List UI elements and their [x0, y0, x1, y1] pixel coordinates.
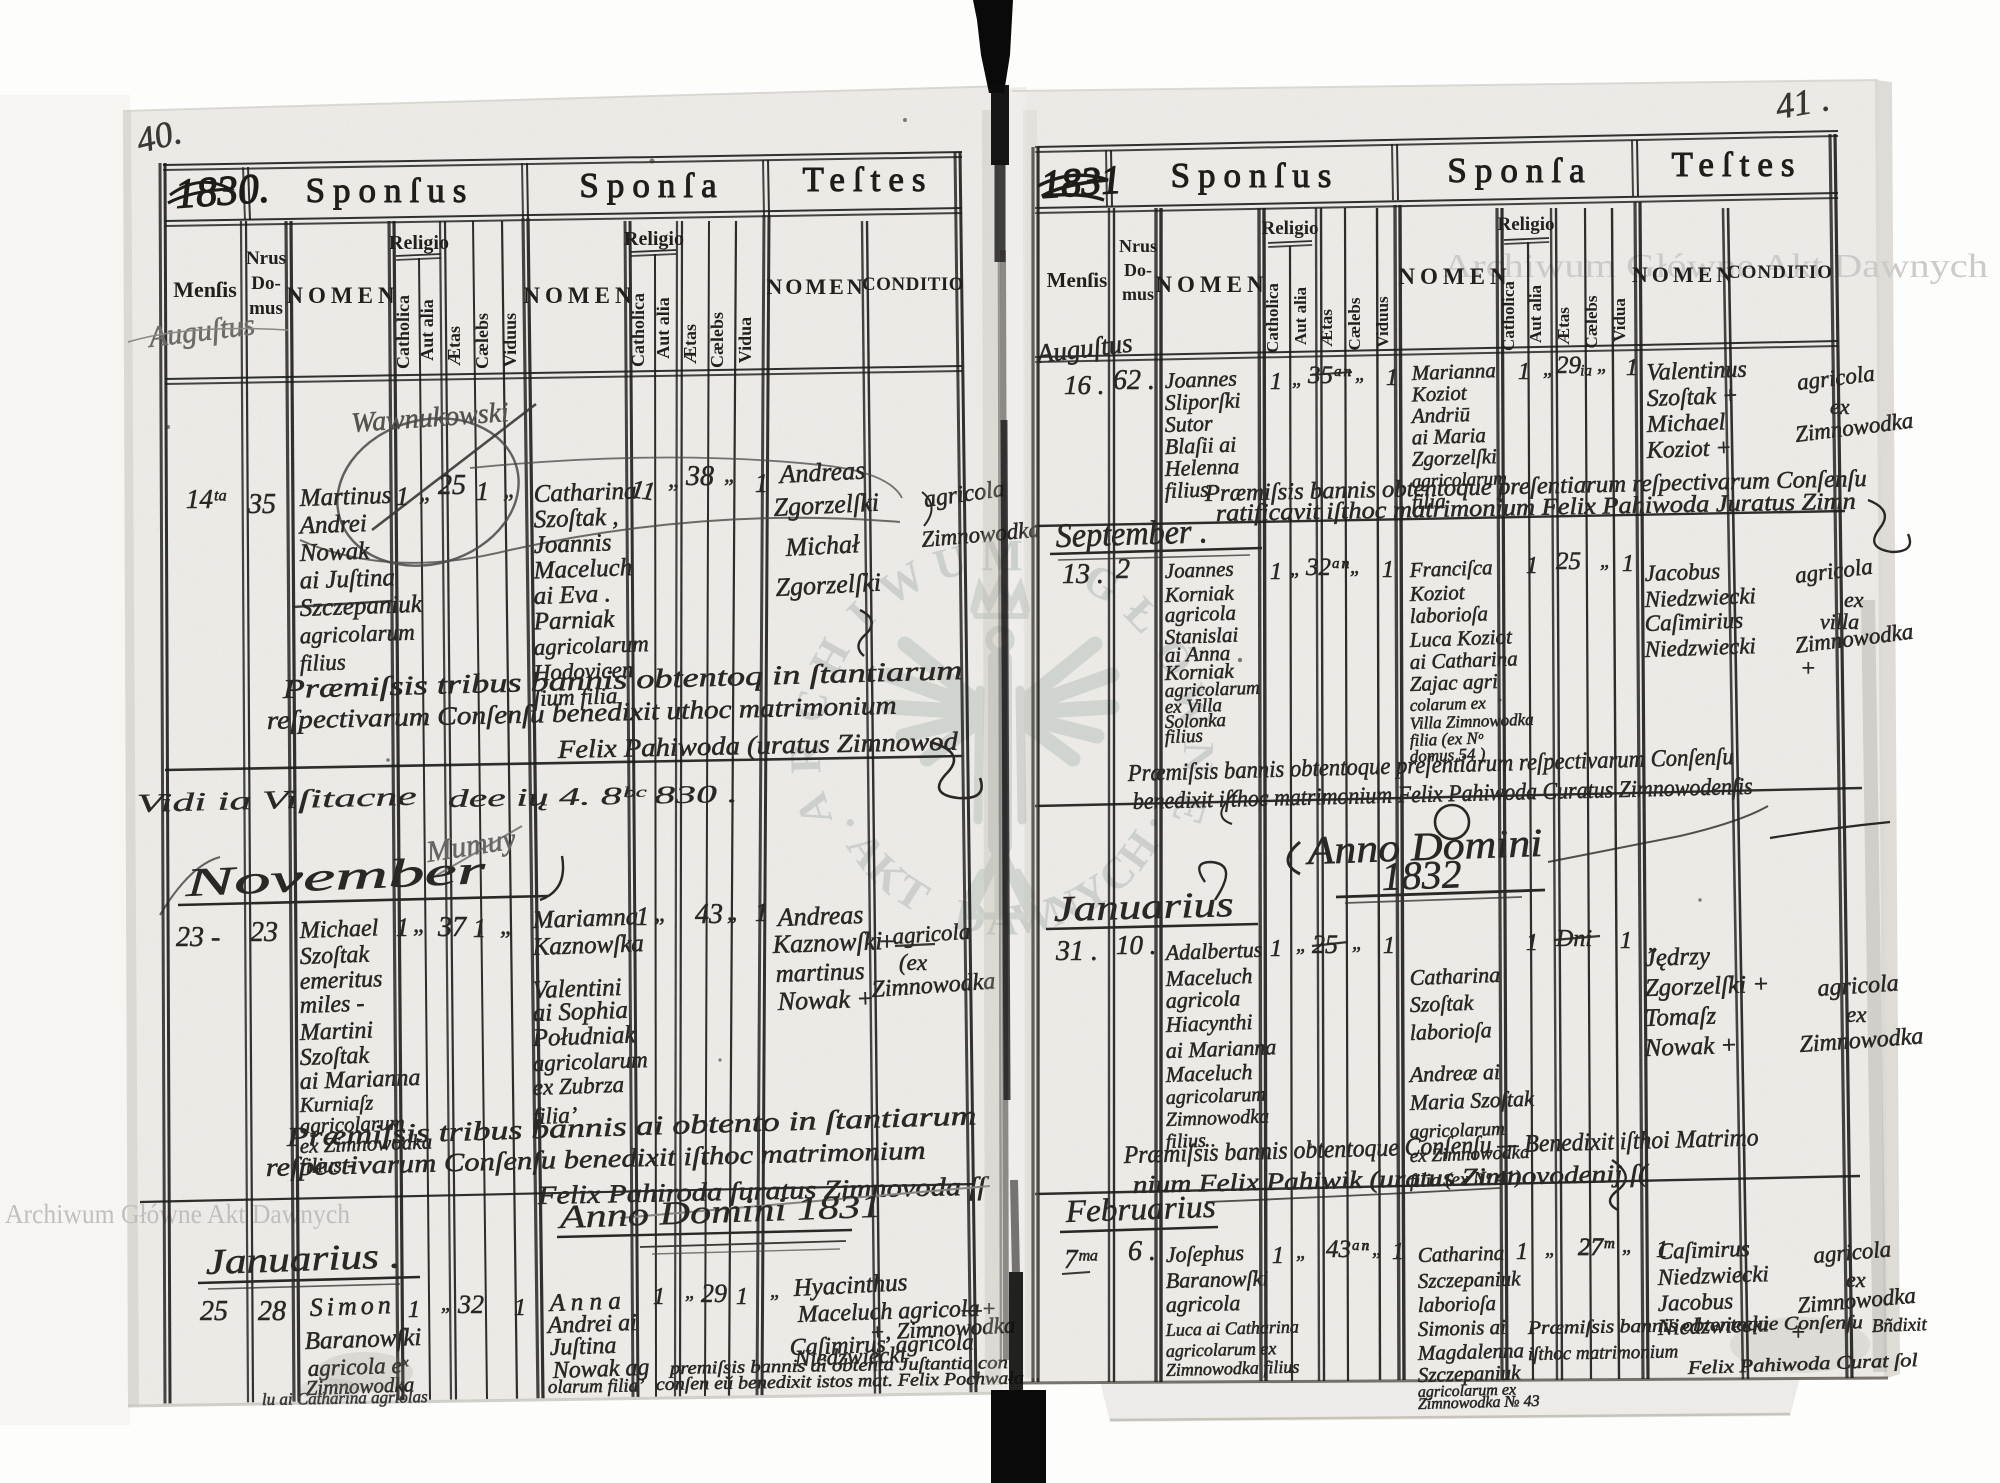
svg-text:agricolarum: agricolarum	[532, 1047, 648, 1076]
svg-text:Zgorzelſki: Zgorzelſki	[773, 488, 880, 522]
svg-text:1: 1	[755, 469, 768, 498]
svg-text:„: „	[1292, 368, 1303, 390]
svg-text:CONDITIO: CONDITIO	[862, 274, 964, 295]
svg-text:1: 1	[636, 902, 649, 931]
svg-text:„: „	[1355, 363, 1366, 385]
svg-text:Zimnowodka filius: Zimnowodka filius	[1166, 1357, 1300, 1380]
svg-text:Aut alia: Aut alia	[1291, 286, 1310, 345]
svg-text:„: „	[1290, 558, 1301, 580]
svg-text:Jędrzy: Jędrzy	[1644, 943, 1711, 972]
svg-text:NOMEN: NOMEN	[523, 283, 636, 308]
svg-text:Cælebs: Cælebs	[472, 313, 492, 369]
svg-text:„: „	[1600, 550, 1611, 572]
svg-text:1: 1	[1518, 359, 1530, 385]
svg-text:1: 1	[1516, 1239, 1528, 1265]
svg-text:37: 37	[437, 912, 467, 943]
svg-text:Michał: Michał	[784, 529, 861, 562]
svg-text:iſthoc matrimonium: iſthoc matrimonium	[1528, 1341, 1679, 1365]
svg-text:1: 1	[653, 1284, 665, 1310]
svg-text:Maceluch: Maceluch	[1164, 1059, 1253, 1087]
svg-text:Zgorzelſki +: Zgorzelſki +	[1644, 971, 1769, 1002]
svg-text:Aut alia: Aut alia	[653, 297, 673, 359]
svg-text:Vidua: Vidua	[1610, 298, 1629, 342]
svg-text:1: 1	[514, 1295, 526, 1321]
svg-text:35: 35	[247, 489, 276, 520]
svg-text:Kaznowſka: Kaznowſka	[531, 930, 644, 961]
svg-text:Simon: Simon	[309, 1290, 395, 1322]
svg-text:Catholica: Catholica	[1263, 283, 1282, 353]
svg-text:43: 43	[695, 899, 723, 930]
svg-text:38: 38	[685, 461, 714, 492]
svg-text:Franciſca: Franciſca	[1408, 555, 1493, 582]
svg-text:1830.: 1830.	[173, 165, 270, 217]
svg-text:1: 1	[1626, 355, 1638, 381]
svg-text:Valentinus: Valentinus	[1646, 357, 1747, 386]
svg-text:„: „	[685, 1281, 696, 1303]
svg-text:CONDITIO: CONDITIO	[1727, 262, 1833, 283]
svg-text:Teſtes: Teſtes	[802, 160, 933, 199]
svg-text:25: 25	[438, 470, 466, 501]
svg-text:ai Juſtina: ai Juſtina	[299, 564, 395, 594]
svg-text:Aut alia: Aut alia	[1526, 284, 1545, 343]
svg-text:Caſimirius: Caſimirius	[1644, 608, 1743, 636]
svg-text:Andreæ ai: Andreæ ai	[1407, 1059, 1500, 1087]
svg-text:Szoſtak +: Szoſtak +	[1646, 383, 1738, 412]
svg-text:„: „	[413, 912, 426, 938]
svg-text:miles -: miles -	[299, 991, 365, 1019]
svg-text:Szczepaniuk: Szczepaniuk	[1418, 1266, 1522, 1293]
svg-text:Do-: Do-	[251, 273, 281, 294]
svg-text:23: 23	[250, 917, 278, 948]
svg-text:laborioſa: laborioſa	[1409, 1017, 1492, 1045]
svg-text:1: 1	[1526, 553, 1538, 579]
svg-text:Sponſa: Sponſa	[579, 166, 724, 205]
svg-text:Menſis: Menſis	[1047, 268, 1108, 292]
svg-text:Cælebs: Cælebs	[707, 312, 727, 368]
svg-text:11: 11	[629, 474, 657, 506]
svg-text:Maceluch: Maceluch	[532, 554, 632, 584]
svg-text:Januarius .: Januarius .	[205, 1235, 401, 1282]
svg-text:Bñdixit: Bñdixit	[1871, 1314, 1927, 1337]
svg-text:agricolarum: agricolarum	[533, 631, 649, 660]
svg-text:Sponſus: Sponſus	[1171, 156, 1340, 195]
svg-text:olarum filia’: olarum filia’	[548, 1375, 645, 1398]
svg-text:Tomaſz: Tomaſz	[1644, 1003, 1717, 1032]
svg-text:agricola: agricola	[1165, 1290, 1240, 1317]
svg-text:Catharina: Catharina	[533, 477, 637, 508]
svg-text:„: „	[1597, 354, 1608, 376]
svg-text:31 .: 31 .	[1055, 936, 1098, 967]
svg-text:laborioſa: laborioſa	[1409, 601, 1488, 628]
svg-text:Maria Szoſtak: Maria Szoſtak	[1408, 1086, 1535, 1115]
svg-text:Nowak: Nowak	[298, 538, 370, 567]
svg-text:„: „	[770, 1280, 781, 1302]
svg-text:NOMEN: NOMEN	[1632, 262, 1736, 287]
svg-text:Baranowſki: Baranowſki	[304, 1324, 422, 1355]
svg-text:Michael: Michael	[298, 915, 379, 944]
svg-text:6 .: 6 .	[1128, 1236, 1156, 1267]
svg-text:Catholica: Catholica	[628, 293, 648, 367]
svg-text:Nowak +: Nowak +	[1643, 1032, 1737, 1062]
svg-text:Ætas: Ætas	[444, 326, 464, 366]
svg-text:Niedzwiecki: Niedzwiecki	[1643, 633, 1756, 662]
svg-text:14ᵗᵃ: 14ᵗᵃ	[186, 484, 228, 514]
svg-text:Vidua: Vidua	[735, 317, 755, 363]
svg-text:1: 1	[1526, 930, 1538, 956]
svg-text:filius: filius	[1164, 726, 1203, 748]
svg-text:„: „	[668, 467, 681, 493]
svg-text:September .: September .	[1055, 513, 1208, 555]
svg-text:Mariamna: Mariamna	[531, 903, 638, 934]
svg-text:mus: mus	[1122, 284, 1154, 304]
svg-text:Andrei: Andrei	[297, 510, 367, 539]
svg-text:2: 2	[1116, 554, 1130, 585]
svg-text:1: 1	[1270, 559, 1282, 585]
svg-text:Nrus: Nrus	[246, 248, 286, 269]
svg-text:dee ių 4. 8ᵇᶜ 830 .: dee ių 4. 8ᵇᶜ 830 .	[448, 781, 738, 813]
svg-text:62 .: 62 .	[1113, 365, 1155, 396]
svg-text:Zimnowodka № 43: Zimnowodka № 43	[1418, 1393, 1540, 1413]
svg-text:1: 1	[408, 1297, 420, 1323]
svg-text:Caſimirus: Caſimirus	[1657, 1236, 1750, 1264]
svg-text:1: 1	[1392, 1239, 1404, 1265]
svg-text:1: 1	[1622, 551, 1634, 577]
svg-text:„: „	[1296, 1241, 1307, 1263]
svg-text:agricolarum: agricolarum	[299, 619, 415, 648]
svg-text:32ᵃⁿ: 32ᵃⁿ	[1305, 554, 1349, 581]
svg-text:16 .: 16 .	[1064, 370, 1105, 400]
svg-text:„: „	[441, 1293, 452, 1315]
svg-text:1: 1	[476, 477, 489, 506]
svg-text:Menſis: Menſis	[173, 277, 237, 302]
svg-text:Szoſtak: Szoſtak	[1409, 990, 1475, 1017]
svg-text:„: „	[500, 914, 513, 940]
svg-text:25: 25	[200, 1296, 228, 1327]
svg-text:„: „	[1350, 556, 1361, 578]
svg-text:29ᵢₐ: 29ᵢₐ	[1556, 352, 1592, 379]
svg-text:Religio: Religio	[1262, 218, 1319, 239]
svg-text:mus: mus	[249, 298, 283, 319]
svg-text:Martinus: Martinus	[298, 482, 392, 512]
svg-text:Zimnowodka: Zimnowodka	[1165, 1105, 1269, 1131]
svg-text:„: „	[1296, 934, 1307, 956]
svg-text:(ex: (ex	[899, 950, 928, 975]
svg-text:Januarius: Januarius	[1053, 884, 1234, 929]
svg-text:1: 1	[396, 482, 409, 511]
svg-text:Hiacynthi: Hiacynthi	[1164, 1009, 1253, 1037]
svg-text:1: 1	[1270, 369, 1282, 395]
svg-text:Viduus: Viduus	[500, 313, 520, 367]
svg-text:7ᵐᵃ: 7ᵐᵃ	[1064, 1244, 1100, 1274]
svg-text:NOMEN: NOMEN	[766, 274, 865, 299]
svg-text:Luca ai Catharina: Luca ai Catharina	[1165, 1317, 1299, 1341]
svg-text:Nowak +: Nowak +	[776, 984, 874, 1016]
svg-text:1: 1	[1386, 365, 1398, 391]
svg-text:32: 32	[457, 1290, 484, 1319]
svg-text:Szoſtak: Szoſtak	[299, 942, 370, 970]
svg-text:Joſephus: Joſephus	[1165, 1240, 1244, 1267]
svg-text:Viduus: Viduus	[1373, 296, 1392, 348]
svg-text:1: 1	[1383, 933, 1395, 959]
svg-text:Sponſa: Sponſa	[1447, 151, 1592, 190]
svg-text:„: „	[1543, 358, 1554, 380]
svg-text:Cælebs: Cælebs	[1345, 297, 1364, 350]
svg-text:NOMEN: NOMEN	[1155, 272, 1268, 297]
svg-text:Adalbertus: Adalbertus	[1163, 937, 1262, 965]
svg-text:27ᵐ: 27ᵐ	[1578, 1234, 1615, 1261]
svg-text:„: „	[503, 477, 516, 503]
svg-text:„: „	[724, 462, 736, 487]
svg-text:1: 1	[1620, 928, 1632, 954]
svg-text:„: „	[1372, 1238, 1383, 1260]
svg-text:Martini: Martini	[298, 1017, 373, 1046]
svg-text:1: 1	[1382, 557, 1394, 583]
svg-text:Simonis ai: Simonis ai	[1418, 1315, 1507, 1341]
svg-text:Religio: Religio	[389, 232, 449, 254]
svg-text:Catholica: Catholica	[1499, 281, 1518, 351]
svg-text:Nrus: Nrus	[1119, 236, 1157, 256]
svg-text:„: „	[1352, 932, 1363, 954]
svg-text:Religio: Religio	[1498, 214, 1555, 235]
svg-text:1: 1	[1272, 1243, 1284, 1269]
svg-text:NOMEN: NOMEN	[1398, 264, 1511, 289]
svg-text:Joannes: Joannes	[1164, 557, 1234, 583]
svg-text:43ᵃⁿ: 43ᵃⁿ	[1326, 1236, 1369, 1263]
svg-text:23 -: 23 -	[176, 922, 220, 953]
svg-text:Zgorzelſki: Zgorzelſki	[775, 568, 882, 602]
svg-text:Do-: Do-	[1124, 260, 1152, 280]
svg-text:Niedzwiecki: Niedzwiecki	[1656, 1261, 1769, 1290]
svg-text:Teſtes: Teſtes	[1671, 145, 1802, 184]
svg-text:Michael: Michael	[1645, 409, 1726, 438]
svg-text:Ætas: Ætas	[680, 324, 700, 364]
svg-text:ex: ex	[1846, 1002, 1867, 1027]
svg-text:Zajac agri: Zajac agri	[1409, 669, 1498, 696]
svg-text:1: 1	[473, 914, 486, 943]
svg-text:25: 25	[1556, 548, 1581, 575]
svg-text:Zgorzelſki: Zgorzelſki	[1411, 444, 1497, 471]
svg-text:29: 29	[701, 1279, 727, 1308]
svg-text:Andreas: Andreas	[777, 456, 866, 490]
svg-text:Parniak: Parniak	[532, 606, 615, 636]
svg-text:Ætas: Ætas	[1317, 309, 1336, 347]
svg-text:ex Zubrza: ex Zubrza	[532, 1072, 624, 1100]
svg-text:13 .: 13 .	[1062, 559, 1104, 590]
svg-text:1: 1	[736, 1284, 748, 1310]
svg-text:filius: filius	[1164, 476, 1209, 503]
svg-text:Jacobus: Jacobus	[1644, 558, 1720, 586]
svg-text:Catholica: Catholica	[393, 295, 413, 369]
svg-text:Kaznowſki: Kaznowſki	[771, 926, 883, 959]
svg-text:ai Marianna: ai Marianna	[1165, 1034, 1276, 1063]
svg-text:„: „	[1545, 1238, 1556, 1260]
svg-text:1: 1	[1270, 936, 1282, 962]
svg-text:laborioſa: laborioſa	[1418, 1291, 1497, 1317]
svg-text:Februarius: Februarius	[1064, 1188, 1216, 1229]
svg-text:„: „	[727, 900, 739, 925]
svg-text:Aut alia: Aut alia	[417, 299, 437, 361]
svg-text:NOMEN: NOMEN	[286, 283, 399, 308]
svg-text:Religio: Religio	[624, 228, 684, 250]
svg-text:10 .: 10 .	[1116, 930, 1157, 960]
svg-text:„: „	[1622, 1235, 1633, 1257]
svg-text:Catharina: Catharina	[1409, 962, 1500, 990]
svg-text:Sponſus: Sponſus	[306, 171, 475, 210]
svg-text:28: 28	[258, 1296, 286, 1327]
svg-text:1: 1	[396, 913, 409, 942]
svg-text:Cælebs: Cælebs	[1582, 295, 1601, 348]
svg-text:Ætas: Ætas	[1554, 307, 1573, 345]
svg-text:1: 1	[755, 898, 768, 927]
svg-text:„: „	[419, 480, 432, 506]
svg-text:+: +	[1800, 656, 1816, 682]
svg-text:„: „	[654, 901, 667, 927]
svg-text:Catharina: Catharina	[1418, 1241, 1505, 1267]
svg-text:Koziot +: Koziot +	[1645, 435, 1732, 464]
svg-text:Baranowſki: Baranowſki	[1165, 1265, 1268, 1293]
